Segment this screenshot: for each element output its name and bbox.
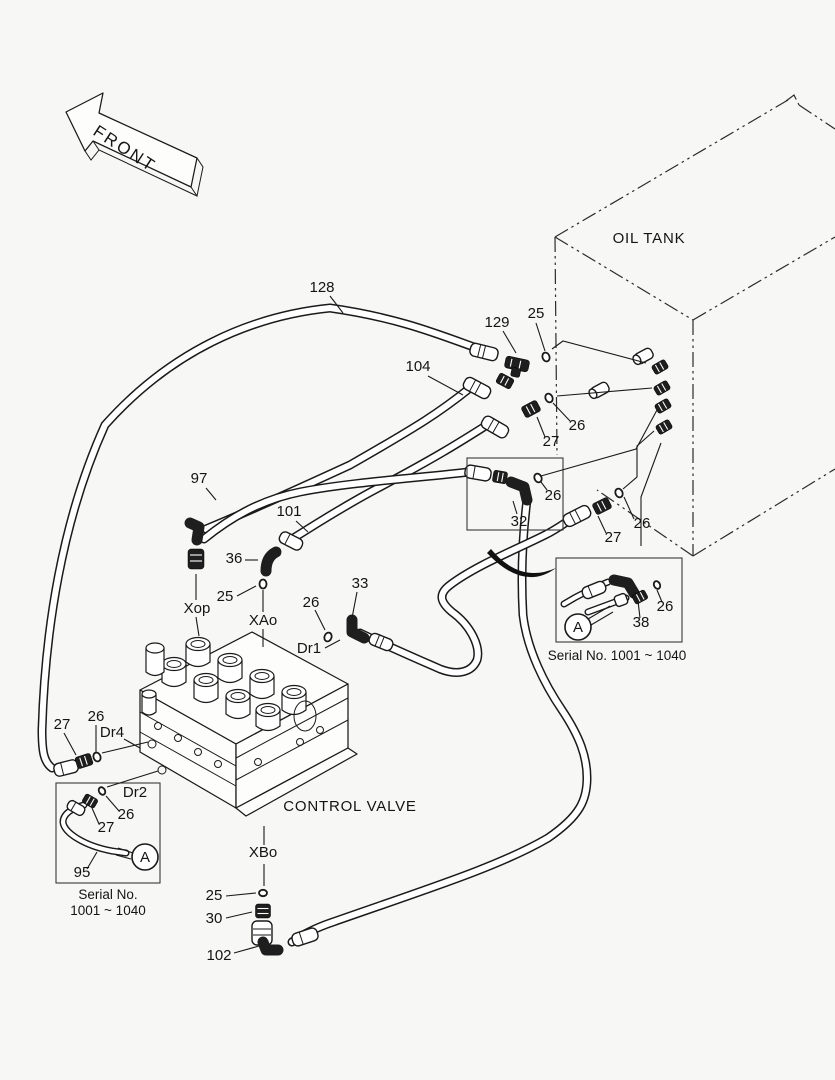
o-ring-26-dr1 xyxy=(323,632,333,643)
o-ring-26-left xyxy=(92,752,102,763)
port-label-dr4: Dr4 xyxy=(100,724,124,741)
o-ring-26-top xyxy=(544,392,554,403)
oil-tank-outline: OIL TANK xyxy=(555,95,835,556)
detail-a-right-serial: Serial No. 1001 ~ 1040 xyxy=(548,648,686,663)
callout-25-tee: 25 xyxy=(528,305,545,322)
callout-25-xbo: 25 xyxy=(206,887,223,904)
tank-fitting xyxy=(653,380,671,396)
port-label-dr1: Dr1 xyxy=(297,640,321,657)
callout-97: 97 xyxy=(191,470,208,487)
coupling-33-tank xyxy=(562,504,593,528)
coupling-101 xyxy=(480,414,511,439)
callout-27-top: 27 xyxy=(543,433,560,450)
callout-38: 38 xyxy=(633,614,650,631)
o-ring-26-right xyxy=(614,487,624,498)
elbow-38 xyxy=(614,580,634,593)
callout-102: 102 xyxy=(206,947,231,964)
o-ring-26-detail-left xyxy=(97,786,106,796)
detail-a-left-serial-2: 1001 ~ 1040 xyxy=(70,903,145,918)
callout-104: 104 xyxy=(405,358,430,375)
elbow-32 xyxy=(511,482,527,500)
o-ring-25-xbo xyxy=(259,890,267,896)
elbow-33 xyxy=(352,620,364,638)
callout-26-dr1: 26 xyxy=(303,594,320,611)
fitting-27-right xyxy=(592,497,613,515)
callout-95: 95 xyxy=(74,864,91,881)
tank-port-bosses xyxy=(587,347,673,435)
coupling-128-valve xyxy=(53,759,79,777)
o-ring-25-xao xyxy=(260,580,267,589)
front-direction-arrow: FRONT xyxy=(66,93,203,196)
detail-a-left-serial-1: Serial No. xyxy=(78,887,137,902)
elbow-xop xyxy=(190,523,199,540)
port-label-dr2: Dr2 xyxy=(123,784,147,801)
port-dr2 xyxy=(158,766,166,774)
piping-diagram: OIL TANK FRONT xyxy=(0,0,835,1080)
control-valve-label: CONTROL VALVE xyxy=(283,798,416,815)
tank-fitting xyxy=(655,419,673,435)
callout-33: 33 xyxy=(352,575,369,592)
o-ring-25-tee xyxy=(541,352,551,363)
coupling-97 xyxy=(464,464,492,481)
elbow-36 xyxy=(266,552,276,571)
detail-a-left: A Serial No. 1001 ~ 1040 xyxy=(56,783,160,918)
tank-fitting xyxy=(651,359,669,375)
port-label-xbo: XBo xyxy=(249,844,277,861)
o-ring-26-detail xyxy=(653,580,662,590)
callout-26-top: 26 xyxy=(569,417,586,434)
callout-26-detail-left: 26 xyxy=(118,806,135,823)
detail-a-right-letter: A xyxy=(573,619,583,636)
callout-27-left: 27 xyxy=(54,716,71,733)
callout-27-right: 27 xyxy=(605,529,622,546)
callout-26-box32: 26 xyxy=(545,487,562,504)
callout-129: 129 xyxy=(484,314,509,331)
fitting-27-left xyxy=(75,753,94,769)
callout-128: 128 xyxy=(309,279,334,296)
callout-101: 101 xyxy=(276,503,301,520)
callout-32: 32 xyxy=(511,513,528,530)
fitting-27-top xyxy=(521,400,542,419)
callout-25-xao: 25 xyxy=(217,588,234,605)
coupling-102-hose xyxy=(291,927,320,947)
coupling-33 xyxy=(368,632,395,652)
oil-tank-label: OIL TANK xyxy=(613,230,686,247)
callout-26-right: 26 xyxy=(634,515,651,532)
fitting-xop xyxy=(188,549,204,569)
control-valve: CONTROL VALVE xyxy=(140,632,417,816)
port-label-xao: XAo xyxy=(249,612,277,629)
callout-26-left: 26 xyxy=(88,708,105,725)
fitting-30 xyxy=(256,904,271,918)
callout-27-detail-left: 27 xyxy=(98,819,115,836)
port-label-xop: Xop xyxy=(184,600,211,617)
coupling-128 xyxy=(469,342,499,361)
detail-a-left-letter: A xyxy=(140,849,150,866)
callout-26-detail-right: 26 xyxy=(657,598,674,615)
callout-30: 30 xyxy=(206,910,223,927)
callout-36: 36 xyxy=(226,550,243,567)
hydraulic-hoses xyxy=(42,308,587,942)
parts-diagram-page: OIL TANK FRONT xyxy=(0,0,835,1080)
